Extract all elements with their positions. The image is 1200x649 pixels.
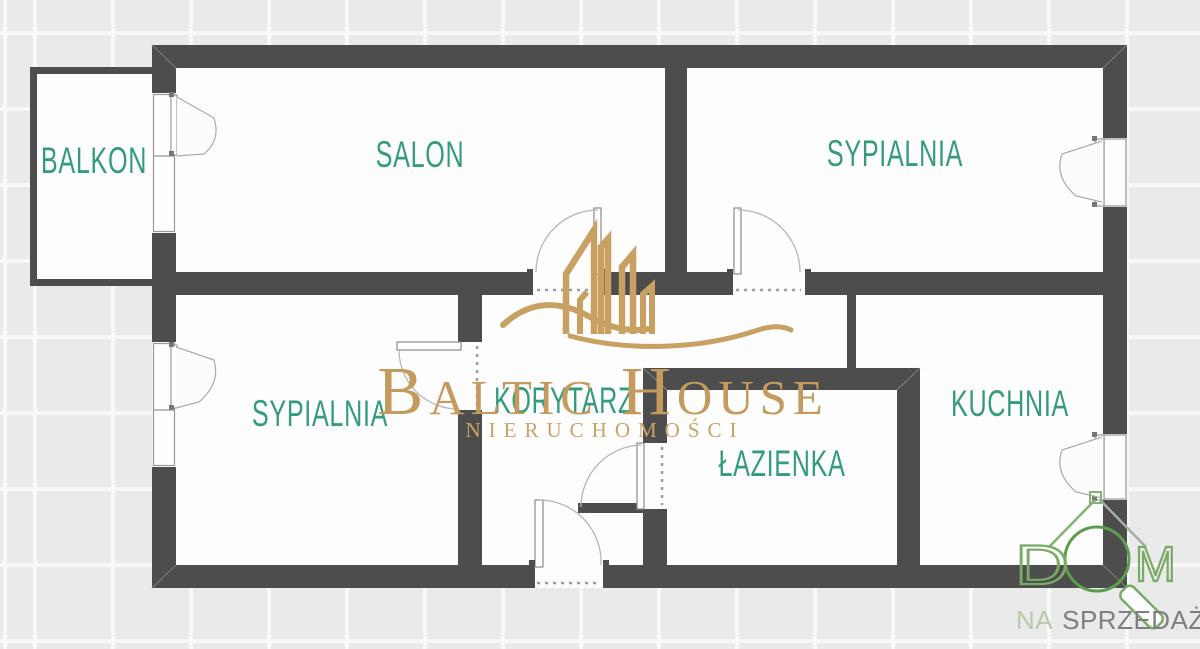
balkon-wall-top: [30, 67, 152, 74]
sypialnia-top-door-opening: [733, 272, 805, 295]
wall-middle-horizontal: [176, 272, 1103, 295]
entrance-door-leaf: [535, 500, 543, 567]
kuchnia-window-opening: [1103, 434, 1127, 500]
entrance-door-opening: [535, 565, 603, 588]
tagline-main: SPRZEDAŻ: [1062, 605, 1200, 635]
balkon-wall-bottom: [30, 279, 152, 286]
lazienka-door-leaf: [637, 443, 644, 509]
balcony-door-sash: [171, 95, 177, 155]
watermark-subtitle: NIERUCHOMOŚCI: [295, 418, 915, 443]
sypialnia-top-window-opening: [1103, 138, 1127, 207]
exterior-wall-bottom: [152, 565, 1127, 588]
wall-salon-sypialnia: [665, 58, 687, 275]
lazienka-door-opening: [643, 443, 667, 509]
logo-letter-m: M: [1135, 538, 1176, 592]
balkon-wall-left: [30, 67, 37, 286]
room-label-sypialnia-top: SYPIALNIA: [827, 133, 963, 175]
sypialnia-left-door-leaf: [397, 342, 461, 350]
wall-stub-entrance: [578, 503, 643, 513]
room-label-lazienka: ŁAZIENKA: [718, 443, 845, 485]
room-label-balkon: BALKON: [41, 140, 147, 182]
tagline-prefix: NA: [1016, 605, 1053, 635]
logo-letter-d: D: [1015, 533, 1069, 596]
floorplan-image: D M BALKON SALON SYPIALNIA SYPIALNIA KOR…: [0, 0, 1200, 649]
agency-tagline: NASPRZEDAŻ: [1016, 605, 1200, 636]
sypialnia-top-door-leaf: [734, 208, 741, 274]
floorplan-drawing: D M: [0, 0, 1200, 649]
exterior-wall-top: [152, 45, 1127, 68]
room-label-kuchnia: KUCHNIA: [951, 383, 1069, 425]
room-label-salon: SALON: [376, 134, 465, 176]
